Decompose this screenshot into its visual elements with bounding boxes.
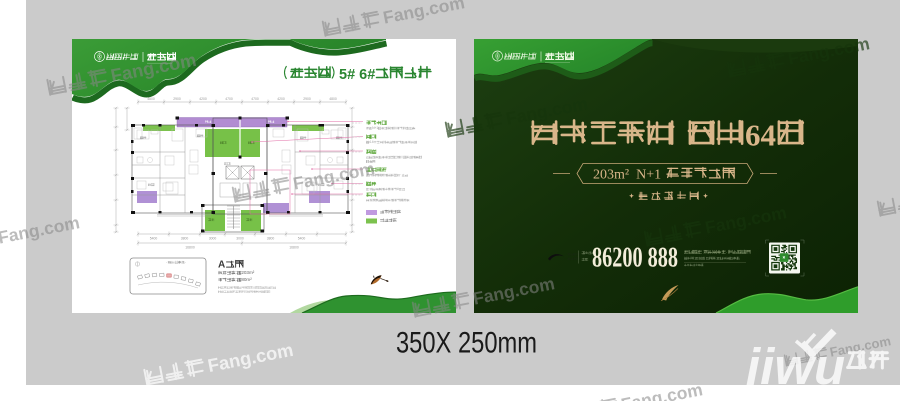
svg-text:·: · xyxy=(185,260,186,264)
svg-text::: : xyxy=(716,256,717,260)
svg-text:16800: 16800 xyxy=(185,246,195,250)
svg-text:203m²: 203m² xyxy=(241,270,254,275)
svg-text:350X 250mm: 350X 250mm xyxy=(396,327,537,360)
svg-text:4200: 4200 xyxy=(277,97,285,101)
svg-text:3800: 3800 xyxy=(181,237,189,241)
svg-text:4.4: 4.4 xyxy=(369,140,374,144)
svg-text:·: · xyxy=(166,260,167,264)
svg-text:A: A xyxy=(218,260,225,271)
svg-text::: : xyxy=(236,270,237,275)
svg-text:·: · xyxy=(726,249,728,254)
svg-text:80m²: 80m² xyxy=(241,277,252,282)
svg-text:16800: 16800 xyxy=(289,246,299,250)
svg-text:jiwu: jiwu xyxy=(740,338,845,395)
svg-text:4800: 4800 xyxy=(147,97,155,101)
svg-text:4700: 4700 xyxy=(225,97,233,101)
svg-text:64: 64 xyxy=(745,118,776,153)
svg-text:2900: 2900 xyxy=(303,97,311,101)
svg-text::: : xyxy=(694,256,695,260)
svg-text:4700: 4700 xyxy=(251,97,259,101)
svg-text:·: · xyxy=(400,173,401,177)
svg-text:3000: 3000 xyxy=(209,237,217,241)
svg-text:4800: 4800 xyxy=(329,97,337,101)
svg-text::: : xyxy=(236,277,237,282)
svg-text:5# 6#: 5# 6# xyxy=(339,67,375,83)
svg-text:203m² N+1: 203m² N+1 xyxy=(593,168,661,183)
svg-text:86200 888: 86200 888 xyxy=(592,243,678,274)
svg-text:5400: 5400 xyxy=(298,237,306,241)
svg-text:4200: 4200 xyxy=(199,97,207,101)
svg-text:5400: 5400 xyxy=(150,237,158,241)
svg-text:2900: 2900 xyxy=(173,97,181,101)
svg-text:#: # xyxy=(397,187,399,191)
svg-text:3000: 3000 xyxy=(236,237,244,241)
svg-text:3800: 3800 xyxy=(267,237,275,241)
svg-text:N+1: N+1 xyxy=(372,126,378,130)
